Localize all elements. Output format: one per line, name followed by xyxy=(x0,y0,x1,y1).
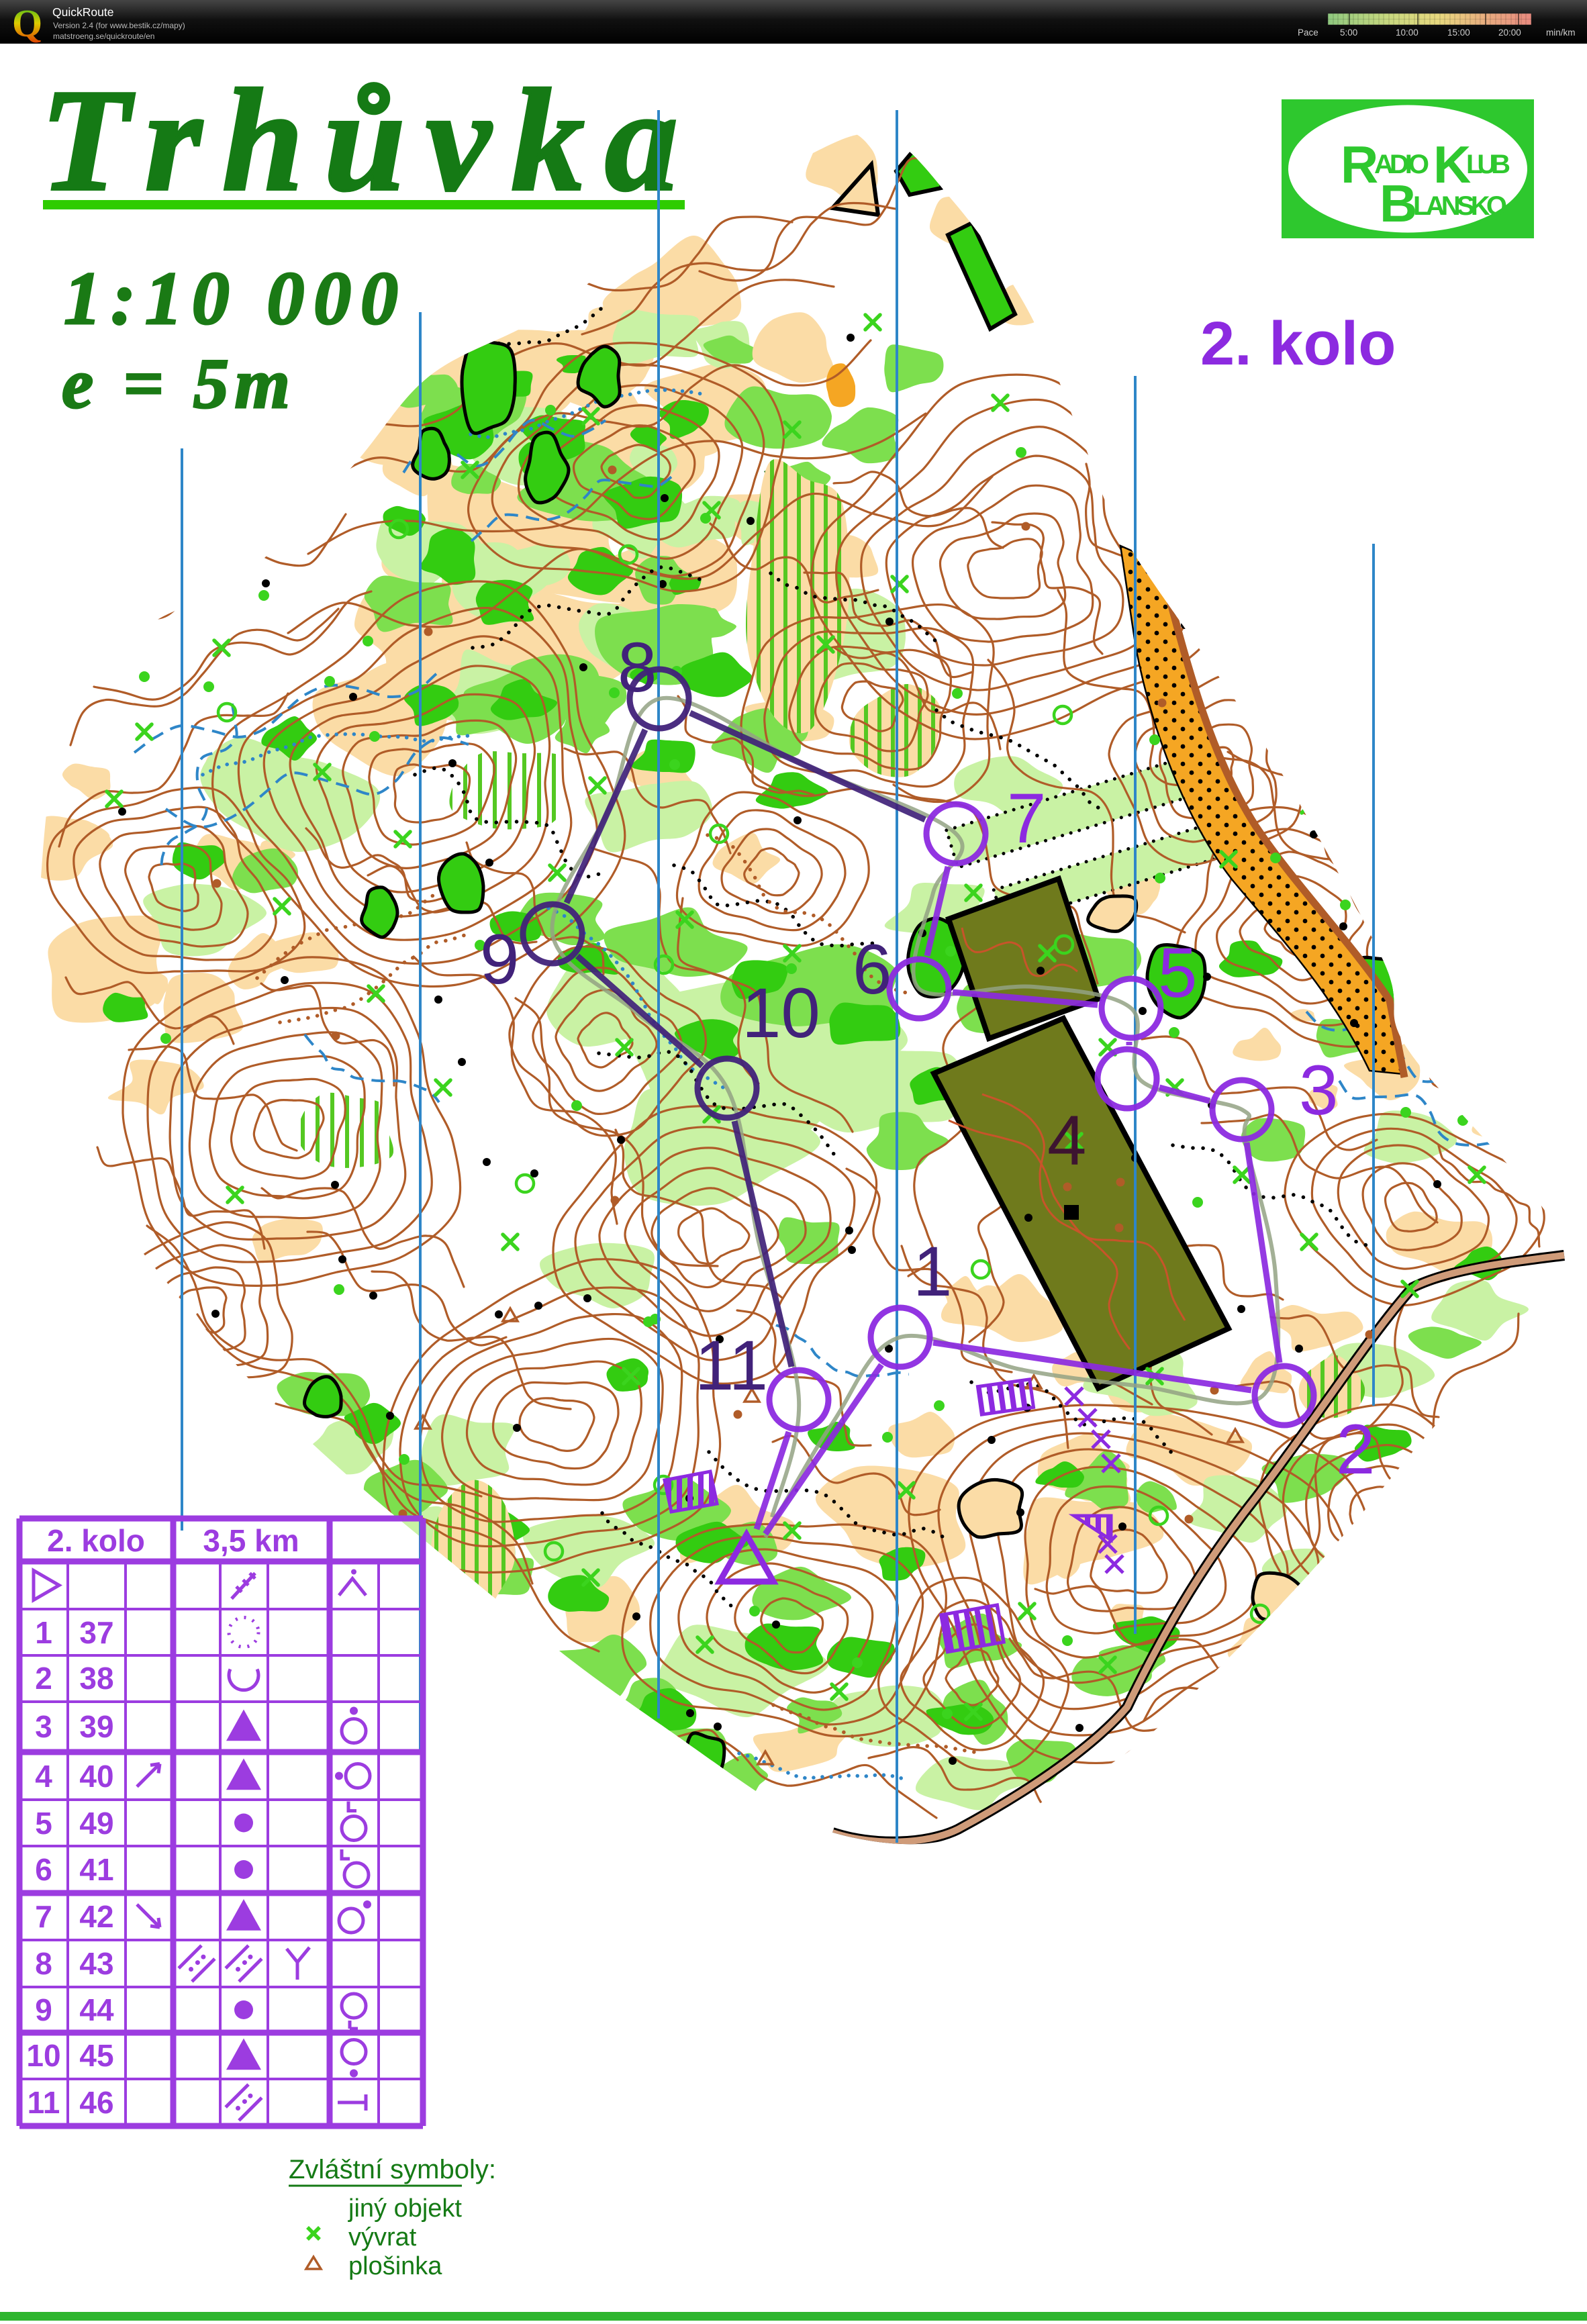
svg-text:39: 39 xyxy=(79,1709,113,1744)
svg-text:43: 43 xyxy=(79,1946,113,1981)
svg-text:10: 10 xyxy=(26,2038,60,2073)
svg-text:vývrat: vývrat xyxy=(348,2223,417,2252)
svg-text:10: 10 xyxy=(742,974,820,1053)
svg-text:44: 44 xyxy=(79,1992,114,2027)
svg-text:6: 6 xyxy=(35,1852,52,1887)
svg-text:2: 2 xyxy=(35,1661,52,1696)
svg-text:46: 46 xyxy=(79,2085,113,2120)
svg-text:6: 6 xyxy=(853,930,892,1009)
svg-text:1: 1 xyxy=(35,1615,52,1650)
svg-text:8: 8 xyxy=(35,1946,52,1981)
svg-text:11: 11 xyxy=(695,1326,768,1405)
svg-text:40: 40 xyxy=(79,1759,113,1794)
svg-text:Zvláštní symboly:: Zvláštní symboly: xyxy=(289,2155,496,2184)
svg-text:11: 11 xyxy=(28,2085,60,2120)
svg-text:2. kolo: 2. kolo xyxy=(47,1523,145,1558)
svg-text:3,5 km: 3,5 km xyxy=(203,1523,299,1558)
svg-text:LANSKO: LANSKO xyxy=(1413,191,1507,221)
svg-text:42: 42 xyxy=(79,1899,113,1934)
svg-text:49: 49 xyxy=(79,1806,113,1841)
svg-text:3: 3 xyxy=(35,1709,52,1744)
svg-text:R: R xyxy=(1341,135,1378,194)
svg-text:e = 5m: e = 5m xyxy=(62,344,290,423)
svg-text:7: 7 xyxy=(1007,779,1046,858)
svg-text:1:10 000: 1:10 000 xyxy=(64,257,398,340)
svg-text:10:00: 10:00 xyxy=(1396,28,1418,38)
svg-text:QuickRoute: QuickRoute xyxy=(52,5,113,19)
svg-text:jiný objekt: jiný objekt xyxy=(348,2194,462,2223)
svg-text:5:00: 5:00 xyxy=(1340,28,1357,38)
svg-text:4: 4 xyxy=(1047,1102,1086,1180)
svg-text:9: 9 xyxy=(480,920,519,999)
svg-text:20:00: 20:00 xyxy=(1498,28,1521,38)
svg-text:K: K xyxy=(1433,135,1471,194)
svg-text:matstroeng.se/quickroute/en: matstroeng.se/quickroute/en xyxy=(53,32,154,41)
svg-text:B: B xyxy=(1380,174,1417,233)
svg-text:9: 9 xyxy=(35,1992,52,2027)
svg-text:min/km: min/km xyxy=(1546,28,1576,38)
svg-text:15:00: 15:00 xyxy=(1447,28,1470,38)
svg-text:Trhůvka: Trhůvka xyxy=(40,60,678,222)
svg-text:8: 8 xyxy=(618,628,657,707)
svg-text:LUB: LUB xyxy=(1466,150,1510,179)
svg-text:37: 37 xyxy=(79,1615,113,1650)
svg-text:Pace: Pace xyxy=(1298,28,1318,38)
svg-text:41: 41 xyxy=(79,1852,113,1887)
svg-text:2: 2 xyxy=(1336,1410,1375,1489)
svg-text:plošinka: plošinka xyxy=(348,2252,442,2280)
svg-text:38: 38 xyxy=(79,1661,113,1696)
svg-text:1: 1 xyxy=(913,1232,952,1311)
svg-text:Version 2.4 (for www.bestik.c: Version 2.4 (for www.bestik.cz/mapy) xyxy=(53,21,185,30)
svg-text:5: 5 xyxy=(1158,934,1197,1012)
svg-text:4: 4 xyxy=(35,1759,52,1794)
svg-text:45: 45 xyxy=(79,2038,113,2073)
svg-text:3: 3 xyxy=(1299,1051,1338,1130)
svg-text:2. kolo: 2. kolo xyxy=(1200,309,1396,378)
svg-text:Q: Q xyxy=(12,1,42,45)
svg-text:7: 7 xyxy=(35,1899,52,1934)
svg-text:5: 5 xyxy=(35,1806,52,1841)
